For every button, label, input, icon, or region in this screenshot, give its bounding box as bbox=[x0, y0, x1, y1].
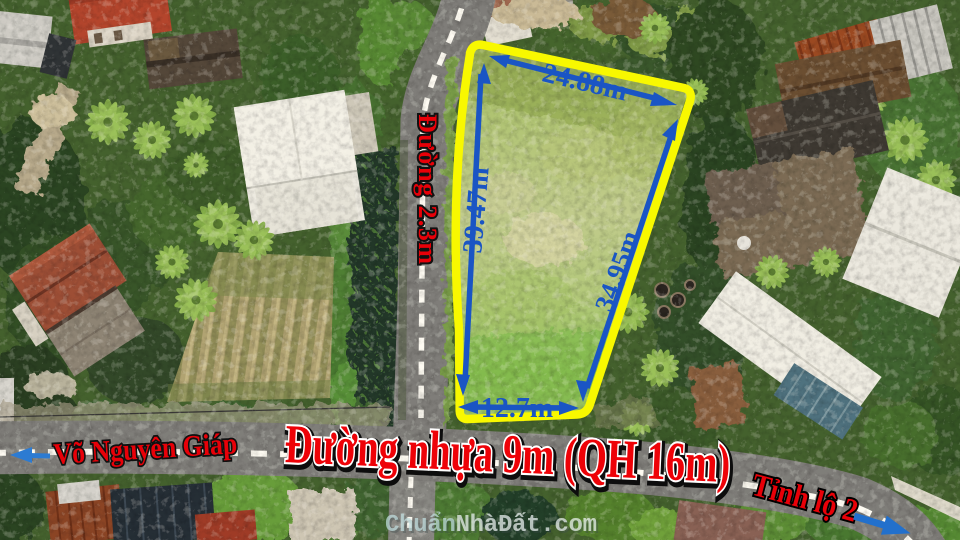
svg-text:12.7m: 12.7m bbox=[481, 393, 553, 424]
svg-text:ChuẩnNhàĐất.com: ChuẩnNhàĐất.com bbox=[385, 511, 597, 539]
svg-text:Đường 2.3m: Đường 2.3m bbox=[413, 114, 442, 264]
